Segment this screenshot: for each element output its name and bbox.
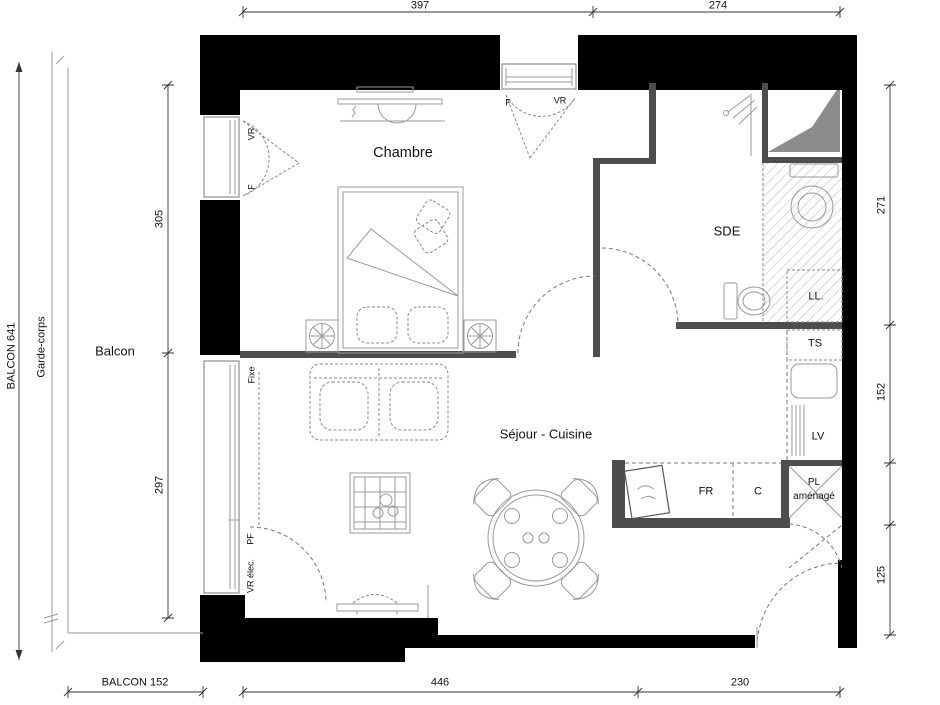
dim-top-chambre: 397 <box>411 1 429 12</box>
label-fridge: FR <box>699 487 714 498</box>
label-closet-line1: PL <box>808 478 820 488</box>
label-window-sejour-pf: PF <box>247 533 256 545</box>
technical-shaft <box>768 85 840 152</box>
label-ts: TS <box>808 339 822 350</box>
label-window-chambre-vr: VR <box>248 128 257 141</box>
floor-plan: Chambre SDE Séjour - Cuisine Balcon LL. … <box>0 0 940 705</box>
dim-left-chambre: 305 <box>155 210 166 228</box>
dim-right-sde: 271 <box>877 196 888 214</box>
kitchen-sink-unit <box>624 465 669 518</box>
room-label-chambre: Chambre <box>373 146 433 161</box>
label-cooker: C <box>754 487 762 498</box>
label-window-top-vr: VR <box>554 97 567 106</box>
room-label-sde: SDE <box>714 225 741 238</box>
window-sejour <box>204 361 326 603</box>
nightstand-left <box>306 320 338 352</box>
label-washing-machine: LL. <box>808 292 823 303</box>
interior-partitions <box>240 83 842 528</box>
light-symbol <box>724 94 758 156</box>
radiator-desk <box>338 87 445 123</box>
room-label-balcon: Balcon <box>95 345 135 358</box>
dim-top-sde: 274 <box>709 1 727 12</box>
floor-plan-drawing <box>0 0 940 705</box>
label-closet-line2: aménagé <box>793 492 835 502</box>
label-window-top-f: F <box>505 99 511 108</box>
sofa <box>310 364 448 440</box>
nightstand-right <box>464 320 496 352</box>
dim-bottom-balcon: BALCON 152 <box>102 678 169 689</box>
dim-bottom-sejour: 446 <box>431 678 449 689</box>
shower-hatch <box>763 163 842 322</box>
dining-table <box>467 472 604 605</box>
dim-left-sejour: 297 <box>155 476 166 494</box>
dim-balcon-height: BALCON 641 <box>7 323 18 390</box>
bed <box>338 187 463 353</box>
label-garde-corps: Garde-corps <box>37 316 48 377</box>
exterior-walls <box>200 35 857 662</box>
dim-bottom-entry: 230 <box>731 678 749 689</box>
label-window-sejour-vr-elec: VR élec. <box>247 559 256 593</box>
dim-right-kitchen: 152 <box>877 383 888 401</box>
label-window-sejour-fixe: Fixe <box>248 366 257 383</box>
window-top <box>502 64 576 158</box>
label-window-chambre-f: F <box>248 184 257 190</box>
plant-table <box>350 473 410 533</box>
dim-right-entry: 125 <box>877 566 888 584</box>
label-dishwasher: LV <box>812 432 825 443</box>
tv-bench <box>337 585 428 618</box>
room-label-sejour-cuisine: Séjour - Cuisine <box>500 428 593 441</box>
